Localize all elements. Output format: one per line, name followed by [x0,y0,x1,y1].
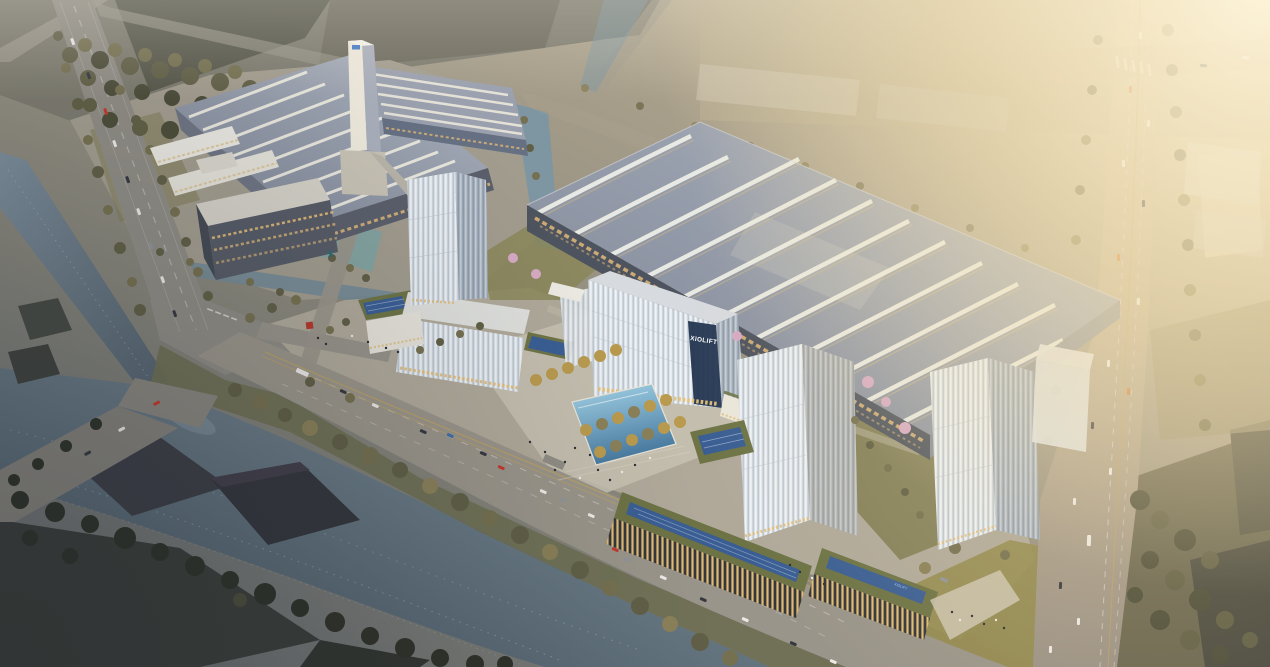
atmosphere-overlays [0,0,1270,667]
sunlight-glow [0,0,1270,667]
aerial-rendering: XIOLIFT XIOLIFT [0,0,1270,667]
rendering-canvas: XIOLIFT XIOLIFT [0,0,1270,667]
